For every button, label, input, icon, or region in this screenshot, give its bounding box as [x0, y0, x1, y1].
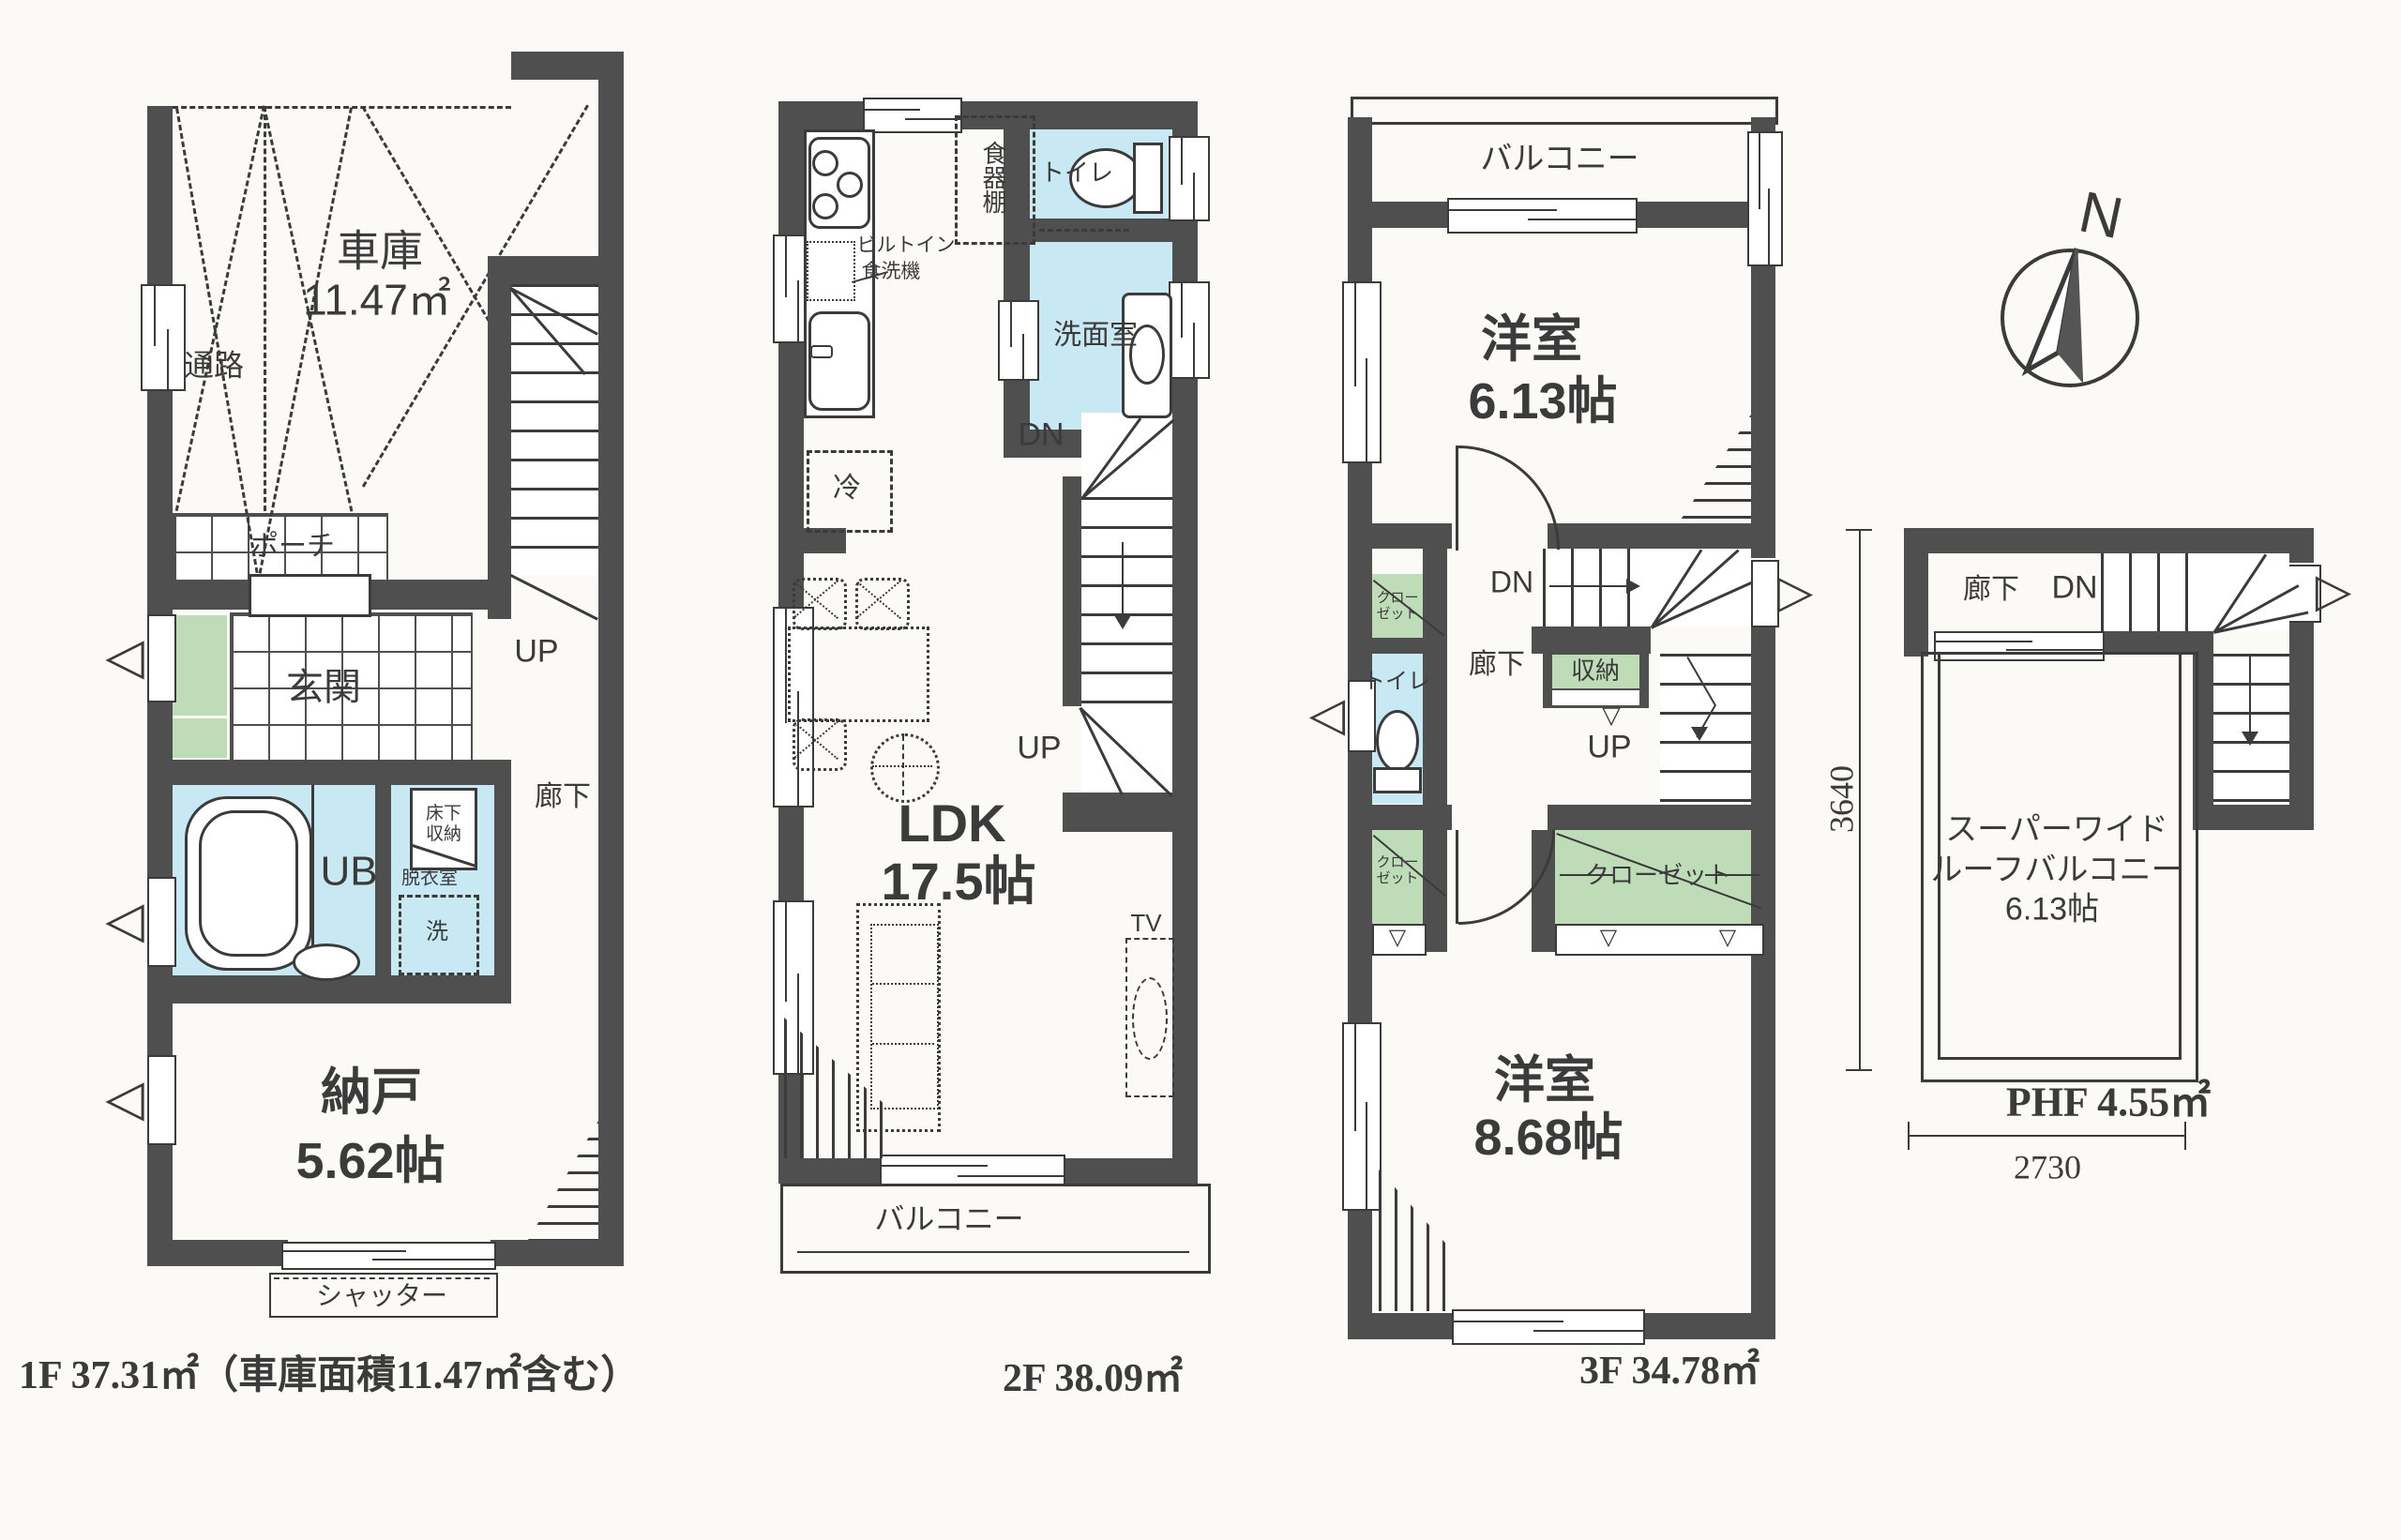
vent-opening	[147, 877, 176, 967]
sofa-cushion-line	[872, 983, 934, 985]
stair-treads	[2213, 654, 2289, 805]
wall	[1348, 523, 1452, 549]
room-label-hallway: 廊下	[1963, 574, 2019, 607]
wall	[1060, 1158, 1198, 1184]
roof-balcony-label: スーパーワイド	[1945, 811, 2168, 848]
room-area-garage: 11.47㎡	[303, 276, 451, 325]
kitchen-sink	[808, 311, 870, 411]
room-label-hallway: 廊下	[1469, 649, 1525, 682]
window	[1169, 136, 1210, 221]
wall	[2193, 805, 2314, 830]
room-area-ldk: 17.5帖	[882, 852, 1036, 912]
room-label-unit-bath: UB	[320, 849, 377, 897]
dimension-height-label: 3640	[1822, 765, 1861, 833]
room-area-storeroom: 5.62帖	[295, 1132, 445, 1190]
wall	[1348, 805, 1452, 830]
garage-swing-line	[257, 107, 353, 581]
toilet-bowl	[1376, 710, 1419, 772]
sofa-inner	[870, 924, 939, 1110]
vent-icon: ▷	[1777, 565, 1813, 619]
cupboard-label: 食器棚	[978, 141, 1006, 214]
wall	[778, 802, 804, 902]
door-leaf	[1456, 445, 1458, 551]
garage-swing-line	[175, 105, 265, 511]
fridge-label: 冷	[833, 473, 861, 506]
chair-cross	[902, 735, 904, 795]
wall	[2289, 621, 2314, 830]
stair-up-label: UP	[1587, 729, 1631, 765]
room-label-storeroom: 納戸	[321, 1064, 422, 1122]
dishwasher-label: 食洗機	[862, 261, 921, 283]
stair-arrow-head	[2242, 732, 2258, 746]
wall	[147, 760, 511, 785]
chevron-icon: ▽	[1389, 925, 1406, 951]
dishwasher-label: ビルトイン	[857, 234, 956, 257]
dishwasher-box	[807, 241, 855, 301]
wall	[147, 580, 250, 610]
roof-balcony-area: 6.13帖	[2005, 891, 2099, 928]
stair-arrow-head	[1626, 579, 1640, 594]
wall	[1904, 528, 2314, 553]
room-label-porch: ポーチ	[250, 531, 335, 564]
burner	[812, 193, 838, 219]
wall	[491, 1240, 624, 1266]
room-label-western1: 洋室	[1481, 310, 1582, 369]
caption-2f: 2F 38.09㎡	[1003, 1356, 1183, 1401]
room-label-entrance: 玄関	[286, 666, 361, 709]
stair-up-label: UP	[514, 633, 558, 670]
vent-icon: ◁	[1309, 687, 1345, 742]
stair-arrow-line	[2249, 657, 2251, 732]
tv-label: TV	[1130, 910, 1161, 938]
washroom-door	[998, 300, 1039, 381]
dimension-tick	[1846, 1069, 1872, 1071]
caption-3f: 3F 34.78㎡	[1579, 1349, 1759, 1394]
wall	[1751, 624, 1775, 1339]
wall	[1063, 793, 1198, 832]
wall	[1904, 528, 1928, 657]
closet-strike-line	[1705, 874, 1759, 876]
burner	[812, 150, 838, 176]
underfloor-storage-box: 床下収納	[410, 788, 477, 870]
dimension-line	[1909, 1135, 2185, 1137]
dimension-tick	[1846, 529, 1872, 531]
wall	[1548, 805, 1775, 830]
caption-1f: 1F 37.31㎡（車庫面積11.47㎡含む）	[19, 1353, 640, 1398]
window	[863, 98, 962, 133]
window	[1747, 131, 1783, 266]
shoe-cabinet	[173, 615, 227, 716]
stair-dn-label: DN	[2051, 569, 2097, 606]
shutter-label: シャッター	[316, 1281, 447, 1311]
storage-label: 収納	[1571, 657, 1620, 686]
wall	[778, 101, 804, 234]
wall	[488, 256, 511, 619]
wall	[1172, 373, 1198, 1184]
chevron-icon: ▽	[1600, 925, 1617, 951]
wall	[1172, 216, 1198, 283]
room-label-hallway: 廊下	[535, 781, 591, 814]
vent-opening	[147, 614, 176, 702]
room-label-toilet: トイレ	[1363, 669, 1430, 695]
sliding-door	[281, 1242, 496, 1270]
burner	[837, 172, 863, 198]
vent-opening	[147, 1055, 176, 1145]
wall	[778, 1158, 882, 1184]
stair-arrow-head	[1691, 727, 1708, 741]
closet-label: クローゼット	[1375, 590, 1420, 623]
toilet-tank	[1373, 767, 1422, 793]
stair-dn-label: DN	[1018, 416, 1064, 453]
wall	[147, 1240, 288, 1266]
wall	[1751, 263, 1775, 558]
vent-icon: ◁	[105, 891, 144, 949]
bathtub-inner	[199, 810, 298, 957]
chevron-icon: ▽	[1719, 925, 1736, 951]
wall	[1372, 638, 1447, 654]
faucet	[810, 345, 833, 358]
storage-slot	[1552, 690, 1639, 705]
washbasin	[293, 944, 360, 981]
wall	[1172, 101, 1198, 138]
front-door	[249, 574, 371, 617]
underfloor-storage-label: 床下収納	[423, 804, 464, 845]
wall	[1348, 750, 1372, 1022]
wall	[1348, 117, 1372, 281]
balcony-rail	[797, 1251, 1189, 1253]
stair-dn-label: DN	[1490, 566, 1533, 600]
window	[1169, 281, 1210, 379]
washer-label: 洗	[426, 919, 448, 945]
closet-strike-line	[1560, 874, 1614, 876]
sliding-door	[1452, 1309, 1645, 1345]
room-label-western2: 洋室	[1494, 1051, 1595, 1110]
wall	[1751, 117, 1775, 131]
room-area-western1: 6.13帖	[1468, 372, 1617, 430]
passage-window	[141, 284, 186, 391]
room-label-washroom: 洗面室	[1053, 320, 1138, 353]
stair-landing	[1081, 705, 1172, 793]
door-arc	[1458, 445, 1560, 550]
room-label-toilet: トイレ	[1040, 159, 1113, 188]
wall	[1639, 1313, 1775, 1339]
chevron-icon: ▽	[1602, 702, 1621, 730]
hatch-lines	[528, 1121, 598, 1240]
room-label-garage: 車庫	[337, 227, 423, 277]
pocket-door-line	[1039, 229, 1129, 232]
room-area-western2: 8.68帖	[1473, 1109, 1623, 1167]
toilet-tank	[1133, 143, 1163, 214]
stair-treads	[2101, 553, 2195, 631]
compass-north-label: N	[2074, 178, 2129, 252]
garage-swing-line	[264, 106, 266, 511]
caption-phf: PHF 4.55㎡	[2006, 1080, 2211, 1127]
tv-screen	[1132, 977, 1168, 1060]
stair-arrow-head	[1114, 615, 1131, 629]
vent-icon: ▷	[2316, 564, 2351, 618]
sliding-door	[1447, 198, 1638, 234]
wall	[364, 580, 511, 610]
shoe-cabinet	[173, 718, 227, 758]
dimension-tick	[2184, 1122, 2186, 1150]
closet-label: クローゼット	[1585, 862, 1731, 890]
stair-arrow-line	[1122, 542, 1124, 615]
wall	[598, 52, 624, 1266]
vent-icon: ◁	[105, 1069, 144, 1127]
shutter-line	[274, 1277, 490, 1279]
stair-arrow-line	[1549, 585, 1626, 587]
wall	[1063, 476, 1081, 706]
room-label-ldk: LDK	[898, 793, 1005, 853]
wall	[1548, 523, 1775, 549]
room-label-balcony: バルコニー	[874, 1202, 1023, 1237]
vent-icon: ◁	[105, 627, 144, 686]
room-label-passage: 通路	[184, 349, 244, 384]
roof-balcony-label: ルーフバルコニー	[1930, 852, 2182, 888]
wall	[494, 760, 511, 975]
closet-label: クローゼット	[1375, 854, 1420, 887]
wall	[1348, 460, 1372, 680]
stair-winder-line	[510, 574, 598, 621]
balcony-rail	[1351, 97, 1778, 125]
garage-top-line	[173, 106, 511, 109]
wall	[1348, 1313, 1454, 1339]
wall	[2289, 528, 2314, 563]
floorplan-sheet: ◁ ◁ ◁ 床下収納 通路 車庫 11.47㎡ ポーチ 玄関 UB 脱衣室 洗 …	[0, 0, 2401, 1540]
window	[1342, 1022, 1382, 1211]
hatch-lines	[1379, 1170, 1458, 1311]
dimension-tick	[1908, 1122, 1910, 1150]
dining-table	[788, 627, 929, 722]
door-leaf	[1456, 830, 1458, 924]
wall	[778, 338, 804, 607]
stair-up-label: UP	[1017, 730, 1061, 766]
room-label-balcony: バルコニー	[1480, 141, 1638, 177]
stair-treads	[1081, 497, 1172, 705]
dimension-width-label: 2730	[2014, 1148, 2081, 1186]
hatch-lines	[1677, 415, 1751, 525]
window	[1342, 281, 1382, 463]
vent-opening	[1751, 560, 1779, 627]
room-label-dressing: 脱衣室	[401, 868, 458, 890]
sofa-cushion-line	[872, 1043, 934, 1045]
